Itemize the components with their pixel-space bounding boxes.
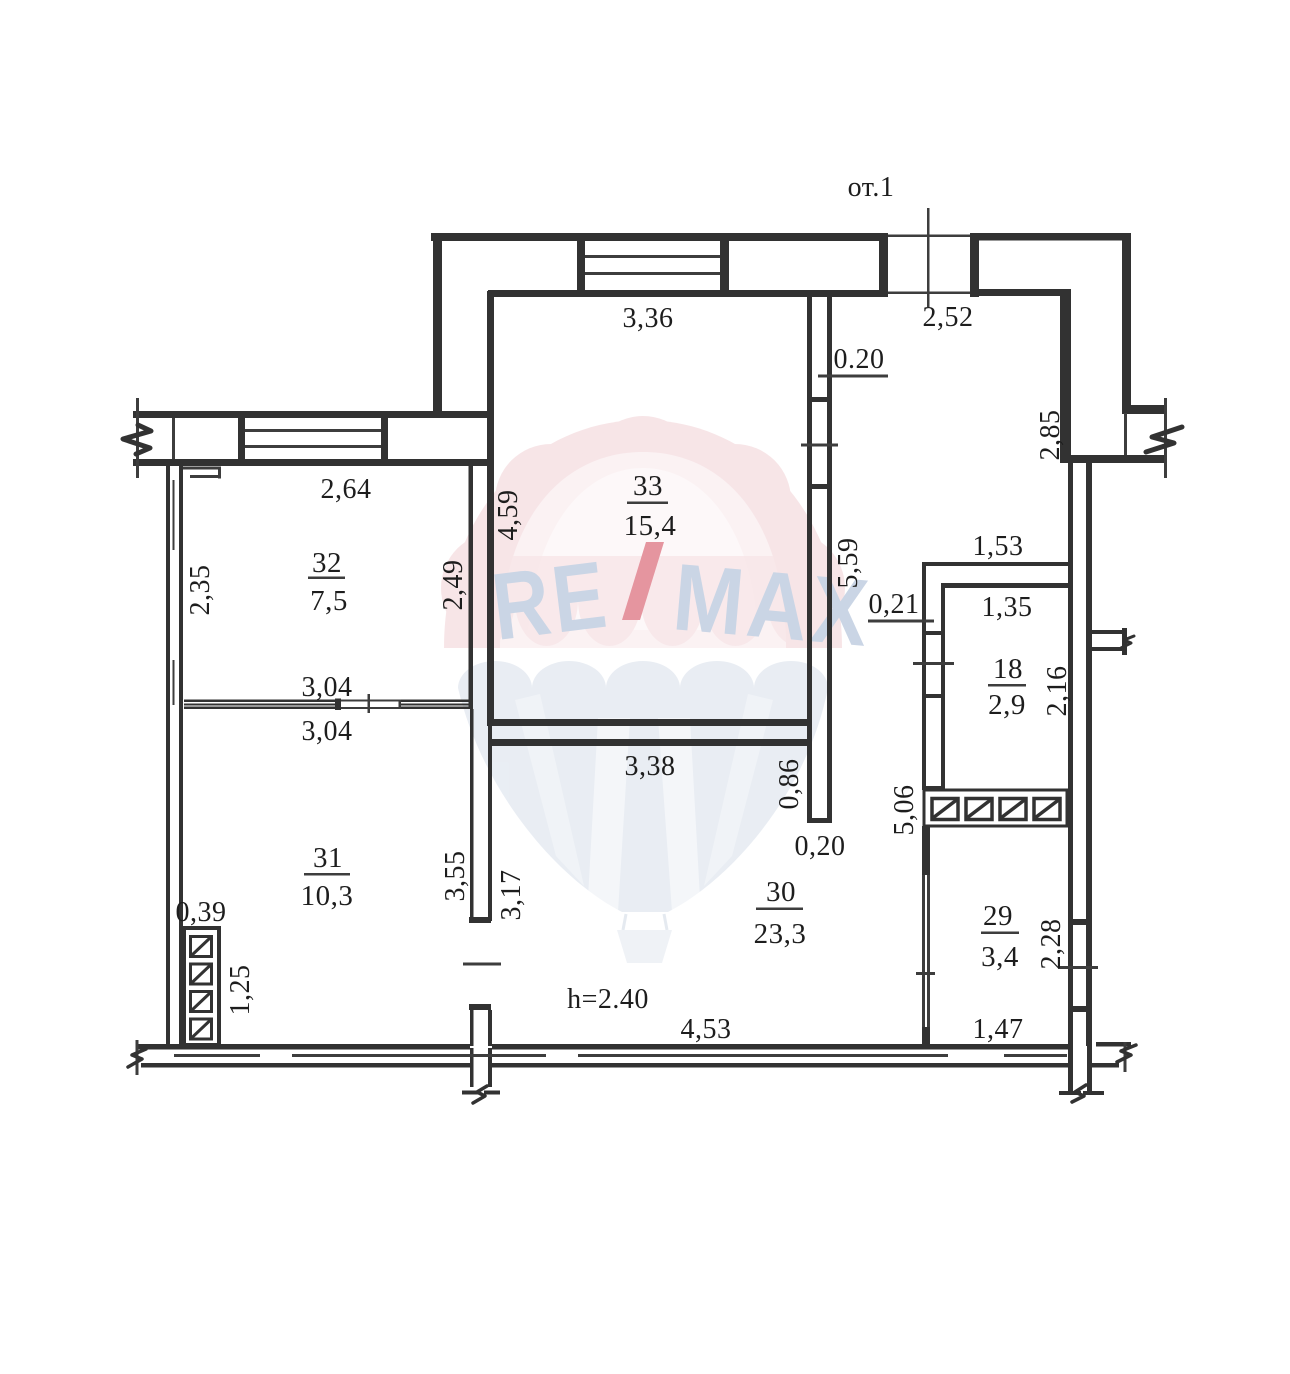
svg-text:2,9: 2,9 (988, 689, 1026, 721)
svg-text:33: 33 (633, 470, 663, 502)
svg-text:от.1: от.1 (848, 172, 895, 203)
svg-text:2,16: 2,16 (1042, 666, 1073, 717)
svg-text:15,4: 15,4 (624, 510, 677, 542)
svg-text:2,49: 2,49 (438, 560, 469, 611)
svg-text:2,52: 2,52 (923, 302, 974, 333)
svg-text:3,38: 3,38 (625, 751, 676, 782)
svg-text:7,5: 7,5 (310, 585, 348, 617)
svg-text:h=2.40: h=2.40 (567, 984, 649, 1015)
svg-text:0,86: 0,86 (774, 759, 805, 810)
svg-text:0.20: 0.20 (834, 344, 885, 375)
svg-text:29: 29 (983, 900, 1013, 932)
svg-text:3,55: 3,55 (440, 851, 471, 902)
svg-text:2,28: 2,28 (1036, 919, 1067, 970)
svg-text:1,25: 1,25 (225, 965, 256, 1016)
svg-text:3,04: 3,04 (302, 716, 353, 747)
svg-text:3,17: 3,17 (496, 870, 527, 921)
svg-text:32: 32 (312, 547, 342, 579)
svg-text:2,35: 2,35 (185, 565, 216, 616)
svg-text:18: 18 (993, 653, 1023, 685)
svg-text:1,35: 1,35 (982, 592, 1033, 623)
svg-text:0,39: 0,39 (176, 897, 227, 928)
svg-text:5,06: 5,06 (889, 785, 920, 836)
svg-text:3,04: 3,04 (302, 672, 353, 703)
svg-text:0,21: 0,21 (869, 589, 920, 620)
svg-text:3,36: 3,36 (623, 303, 674, 334)
svg-text:RE: RE (487, 541, 615, 660)
svg-text:31: 31 (313, 842, 343, 874)
svg-text:0,20: 0,20 (795, 831, 846, 862)
svg-text:4,59: 4,59 (493, 490, 524, 541)
svg-text:2,64: 2,64 (321, 474, 372, 505)
svg-text:1,53: 1,53 (973, 531, 1024, 562)
svg-text:1,47: 1,47 (973, 1014, 1024, 1045)
svg-text:10,3: 10,3 (301, 880, 354, 912)
svg-text:3,4: 3,4 (981, 941, 1019, 973)
svg-text:23,3: 23,3 (754, 918, 807, 950)
svg-text:5,59: 5,59 (833, 538, 864, 589)
svg-text:30: 30 (766, 876, 796, 908)
svg-text:2,85: 2,85 (1035, 410, 1066, 461)
svg-text:4,53: 4,53 (681, 1014, 732, 1045)
